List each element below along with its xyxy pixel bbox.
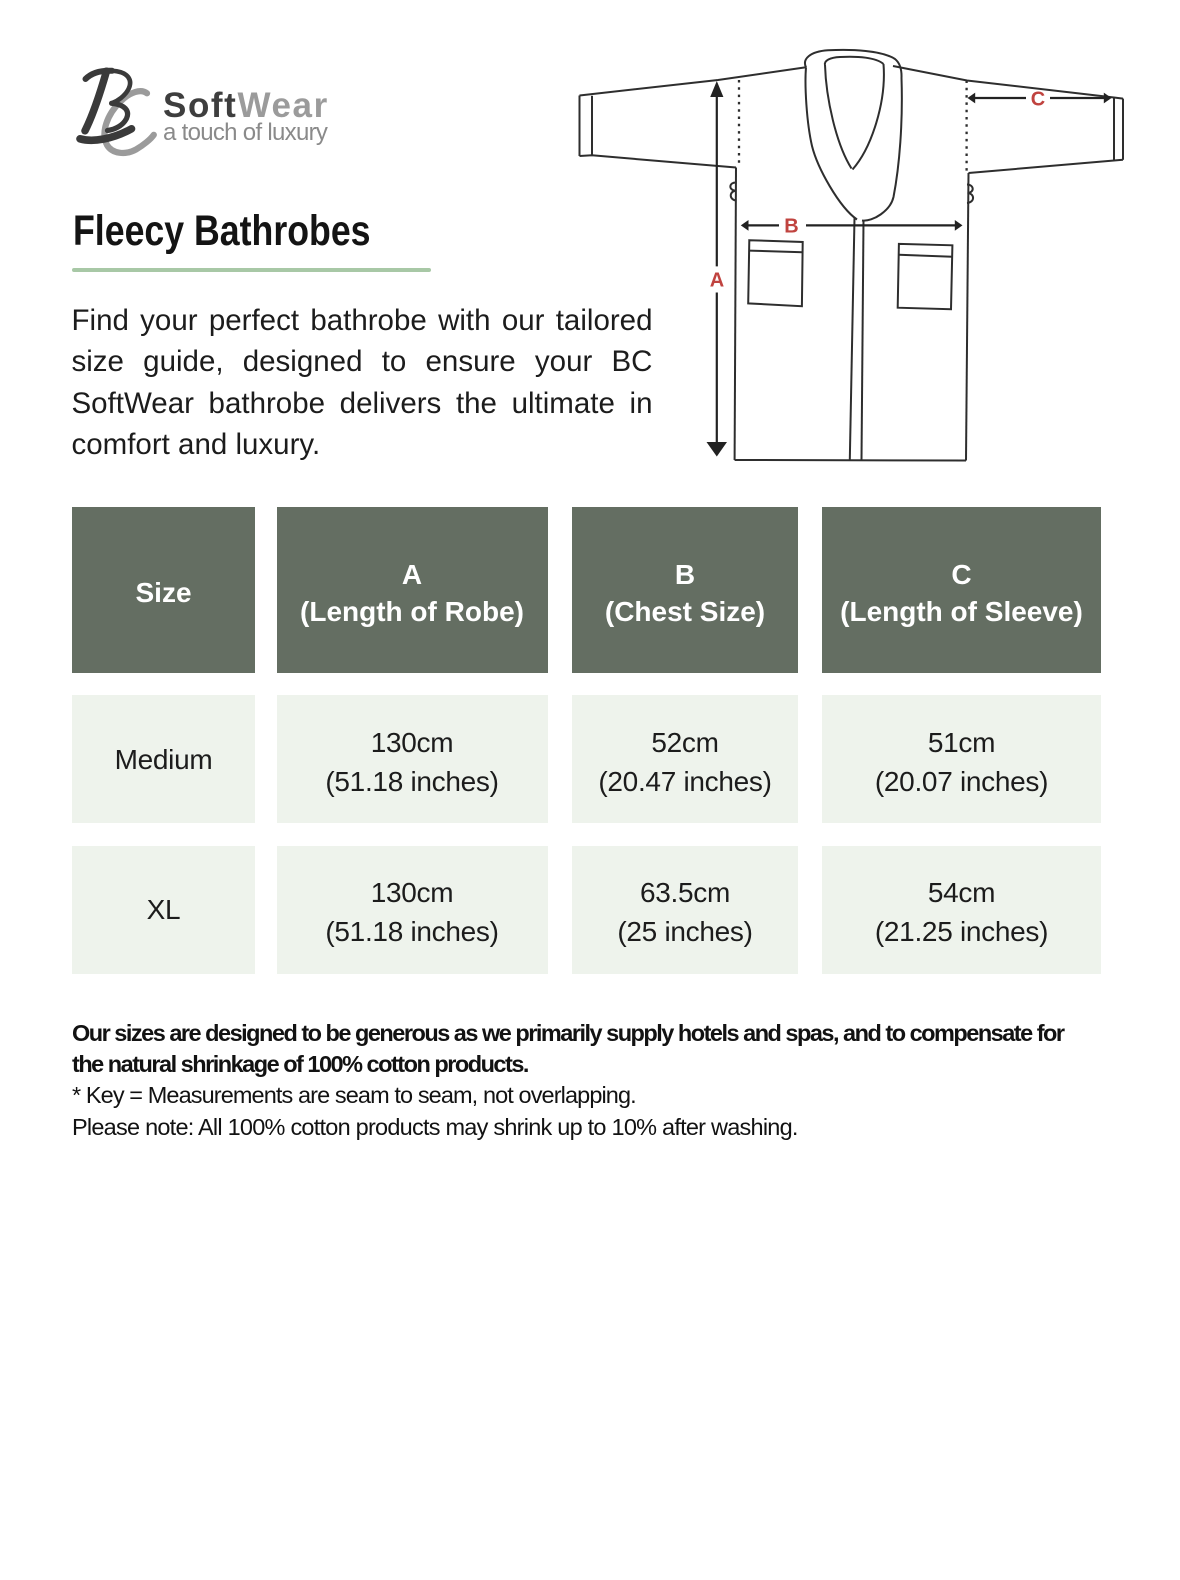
svg-text:A: A xyxy=(710,270,724,292)
svg-text:B: B xyxy=(784,216,798,238)
svg-text:C: C xyxy=(1031,89,1045,111)
